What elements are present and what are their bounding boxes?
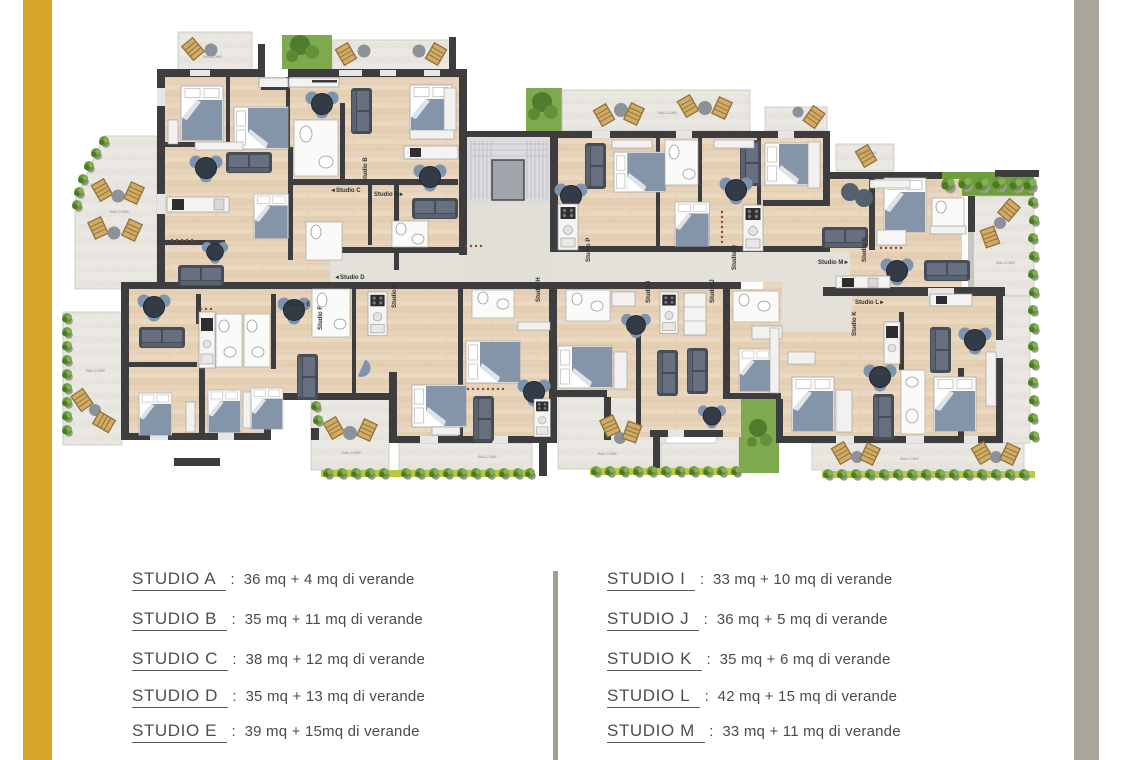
svg-text:Studio I: Studio I — [646, 281, 652, 303]
svg-text:BALCONE: BALCONE — [658, 110, 677, 115]
svg-text:Studio N: Studio N — [862, 237, 868, 262]
svg-text:BALCONE: BALCONE — [900, 456, 919, 461]
svg-text:Studio K: Studio K — [852, 311, 858, 336]
svg-text:◄Studio D: ◄Studio D — [334, 275, 365, 281]
svg-text:Studio A►: Studio A► — [374, 192, 404, 198]
svg-text:Studio L►: Studio L► — [855, 300, 885, 306]
svg-text:Studio B: Studio B — [363, 157, 369, 182]
svg-text:Studio Q: Studio Q — [732, 245, 738, 270]
svg-text:Studio H: Studio H — [536, 277, 542, 302]
svg-text:BALCONE: BALCONE — [342, 450, 361, 455]
svg-text:◄Studio C: ◄Studio C — [330, 188, 361, 194]
svg-text:Studio J: Studio J — [710, 279, 716, 303]
svg-text:Studio M►: Studio M► — [818, 260, 849, 266]
svg-text:Studio P: Studio P — [586, 238, 592, 262]
svg-text:BALCONE: BALCONE — [598, 451, 617, 456]
svg-text:Studio F: Studio F — [318, 306, 324, 330]
svg-text:Studio E: Studio E — [286, 302, 310, 308]
svg-text:BALCONE: BALCONE — [110, 209, 129, 214]
svg-text:BALCONE: BALCONE — [858, 150, 877, 155]
svg-text:BALCONE: BALCONE — [478, 454, 497, 459]
svg-text:Studio G: Studio G — [392, 283, 398, 308]
svg-text:BALCONE: BALCONE — [996, 260, 1015, 265]
svg-text:BALCONE: BALCONE — [203, 54, 222, 59]
svg-text:BALCONE: BALCONE — [86, 368, 105, 373]
